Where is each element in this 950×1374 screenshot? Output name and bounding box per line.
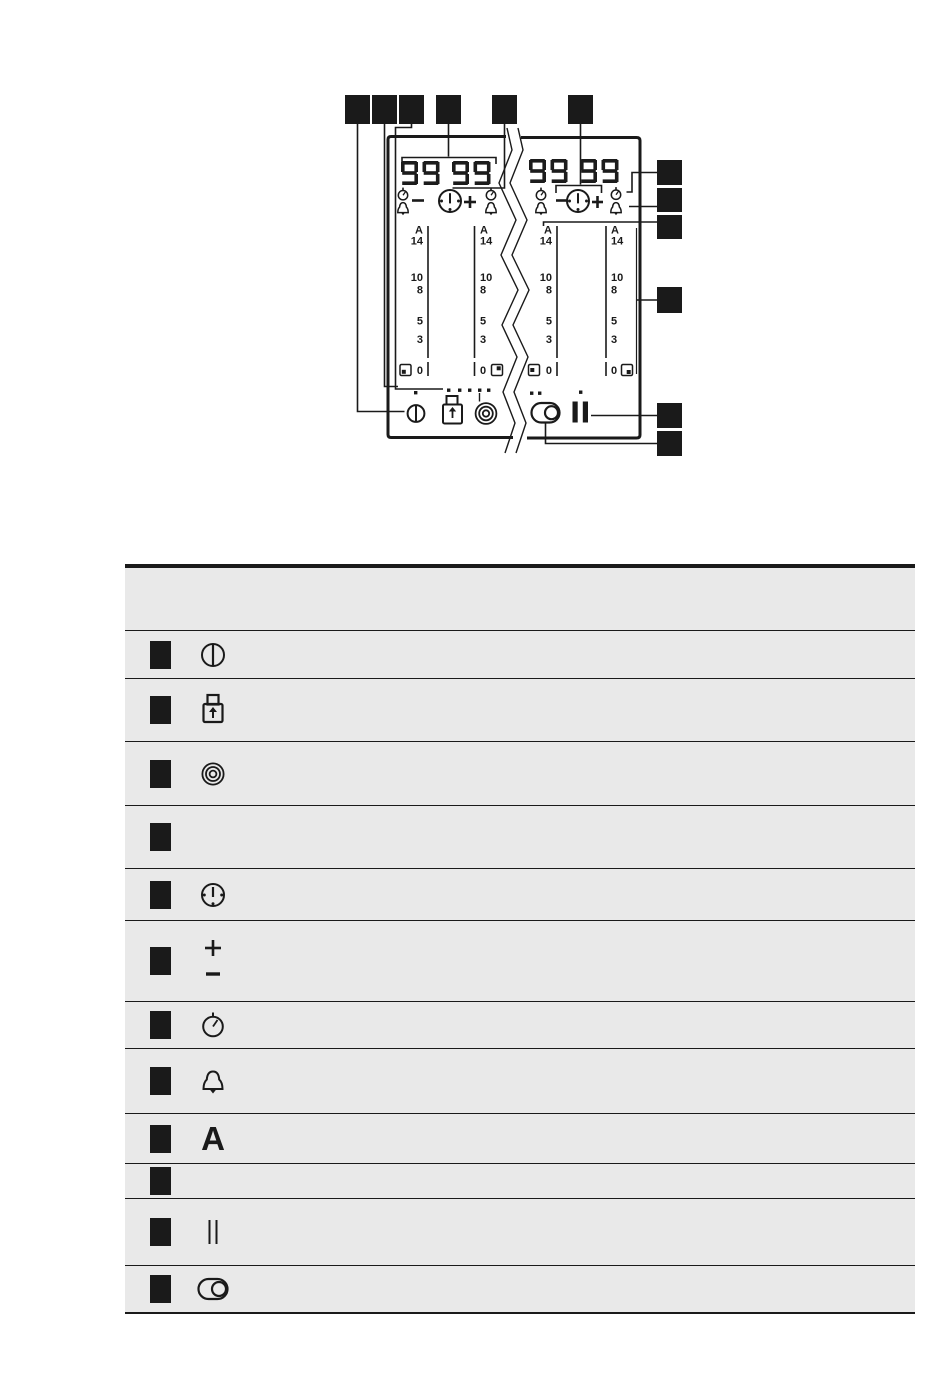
minute-minder-bell-icon <box>398 203 408 216</box>
heat-scale-zone1: A14108530 <box>411 225 424 378</box>
svg-text:3: 3 <box>611 334 617 346</box>
svg-text:14: 14 <box>611 236 624 248</box>
timer-display-right <box>529 159 619 183</box>
row-number-marker <box>150 1275 171 1303</box>
pan-indicator-icons <box>400 365 633 376</box>
table-header <box>125 568 915 630</box>
minute-minder-bell-icon <box>611 203 621 216</box>
lock-icon <box>185 690 241 730</box>
callout-marker-12 <box>657 431 682 456</box>
row-number-marker <box>150 1011 171 1039</box>
count-up-timer-icon <box>611 187 620 199</box>
hob2hood-icon <box>185 1273 241 1305</box>
svg-text:10: 10 <box>411 272 423 284</box>
count-up-timer-icon <box>185 1006 241 1044</box>
timer-clock-icon <box>185 877 241 913</box>
table-row <box>125 630 915 678</box>
row-number-marker <box>150 823 171 851</box>
callout-marker-10 <box>657 287 682 313</box>
plus-key <box>464 196 476 208</box>
timer-clock-icon <box>439 190 461 212</box>
heat-scale-zone4: A14108530 <box>611 225 624 378</box>
plus-minus-icon <box>185 935 241 987</box>
callout-marker-1 <box>345 95 370 124</box>
manual-page: A14108530 A14108530 A14108530 A14108530 <box>0 0 950 1374</box>
symbol-table: A <box>125 564 915 1314</box>
svg-text:3: 3 <box>417 334 423 346</box>
row-number-marker <box>150 760 171 788</box>
table-row: A <box>125 1113 915 1163</box>
svg-text:14: 14 <box>480 236 493 248</box>
svg-text:3: 3 <box>480 334 486 346</box>
pause-icon <box>185 1215 241 1249</box>
svg-text:5: 5 <box>480 316 486 328</box>
svg-text:0: 0 <box>546 365 552 377</box>
svg-text:3: 3 <box>546 334 552 346</box>
pause-key-icon <box>573 402 589 423</box>
table-row <box>125 868 915 920</box>
plus-key <box>592 196 603 208</box>
callout-marker-9 <box>657 215 682 239</box>
row-number-marker <box>150 1218 171 1246</box>
svg-text:8: 8 <box>611 285 617 297</box>
callout-marker-3 <box>399 95 424 124</box>
power-icon <box>185 638 241 672</box>
power-key-icon <box>408 405 425 422</box>
timer-clock-icon <box>567 190 589 212</box>
svg-text:8: 8 <box>546 285 552 297</box>
row-number-marker <box>150 696 171 724</box>
table-row <box>125 1198 915 1265</box>
callout-marker-5 <box>492 95 517 124</box>
callout-marker-6 <box>568 95 593 124</box>
table-row <box>125 1048 915 1113</box>
svg-text:14: 14 <box>540 236 553 248</box>
timer-display-left <box>401 161 491 185</box>
table-row <box>125 805 915 868</box>
power-boost-key-icon <box>476 403 497 424</box>
lock-key-icon <box>443 396 462 424</box>
control-bar-tracks <box>428 226 606 376</box>
power-boost-icon <box>185 756 241 792</box>
svg-text:0: 0 <box>417 365 423 377</box>
table-row <box>125 741 915 805</box>
svg-text:5: 5 <box>417 316 423 328</box>
control-panel-figure: A14108530 A14108530 A14108530 A14108530 <box>0 0 950 520</box>
svg-text:5: 5 <box>546 316 552 328</box>
callout-marker-8 <box>657 188 682 212</box>
svg-text:14: 14 <box>411 236 424 248</box>
table-row <box>125 1163 915 1198</box>
hob2hood-key-icon <box>532 403 560 423</box>
count-up-timer-icon <box>398 188 407 200</box>
svg-text:8: 8 <box>417 285 423 297</box>
heat-scale-zone2: A14108530 <box>480 225 493 378</box>
svg-text:10: 10 <box>611 272 623 284</box>
svg-text:8: 8 <box>480 285 486 297</box>
svg-text:5: 5 <box>611 316 617 328</box>
svg-text:10: 10 <box>480 272 492 284</box>
row-number-marker <box>150 1067 171 1095</box>
row-number-marker <box>150 641 171 669</box>
callout-marker-2 <box>372 95 397 124</box>
count-up-timer-icon <box>536 188 545 200</box>
svg-text:10: 10 <box>540 272 552 284</box>
row-number-marker <box>150 881 171 909</box>
minute-minder-bell-icon <box>486 203 496 216</box>
row-number-marker <box>150 1125 171 1153</box>
callout-marker-4 <box>436 95 461 124</box>
minute-minder-bell-icon <box>185 1061 241 1101</box>
svg-text:0: 0 <box>611 365 617 377</box>
callout-marker-11 <box>657 403 682 428</box>
letter-a: A <box>185 1122 241 1155</box>
table-row <box>125 1001 915 1048</box>
torn-edge-left <box>499 128 518 453</box>
table-row <box>125 678 915 741</box>
callout-marker-7 <box>657 160 682 185</box>
table-row <box>125 920 915 1001</box>
torn-edge-right <box>510 128 529 453</box>
count-up-timer-icon <box>486 188 495 200</box>
minute-minder-bell-icon <box>536 203 546 216</box>
row-number-marker <box>150 1167 171 1195</box>
heat-scale-zone3: A14108530 <box>540 225 553 378</box>
table-row <box>125 1265 915 1312</box>
svg-text:0: 0 <box>480 365 486 377</box>
row-number-marker <box>150 947 171 975</box>
